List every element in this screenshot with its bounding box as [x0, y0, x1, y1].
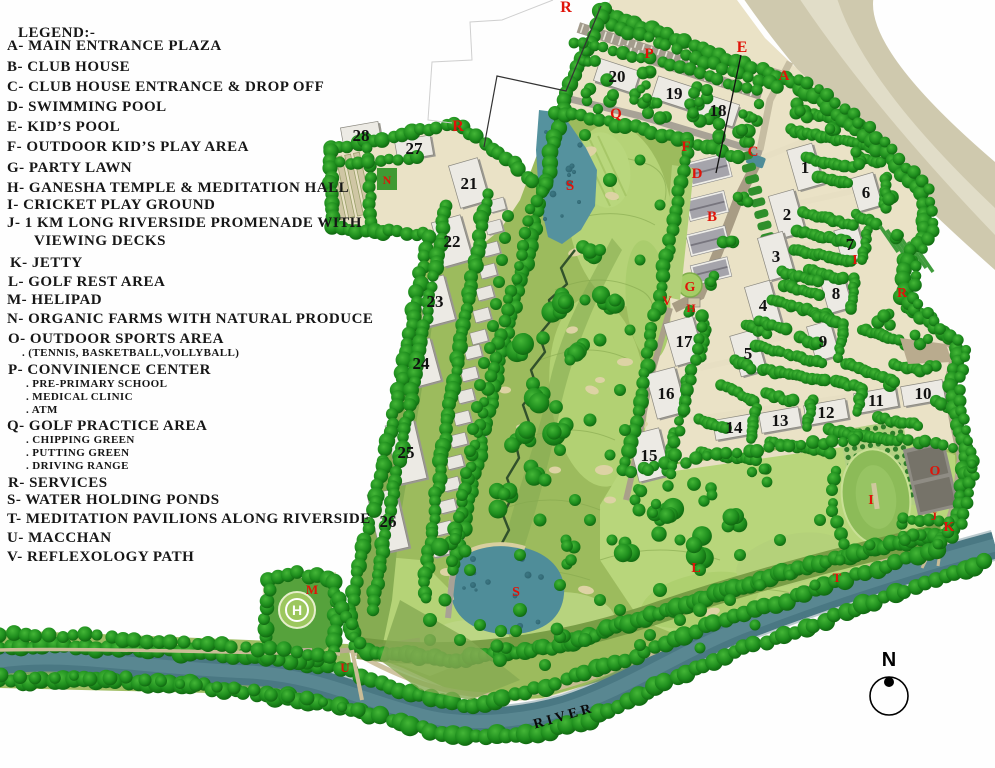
svg-text:25: 25 — [398, 443, 415, 462]
svg-text:10: 10 — [915, 384, 932, 403]
svg-text:U- MACCHAN: U- MACCHAN — [7, 530, 112, 546]
svg-text:. PUTTING GREEN: . PUTTING GREEN — [26, 447, 130, 459]
svg-text:28: 28 — [353, 126, 370, 145]
svg-text:. (TENNIS, BASKETBALL,VOLLYBAL: . (TENNIS, BASKETBALL,VOLLYBALL) — [22, 347, 239, 359]
svg-text:A: A — [779, 68, 790, 84]
svg-text:. PRE-PRIMARY SCHOOL: . PRE-PRIMARY SCHOOL — [26, 378, 167, 390]
svg-text:C- CLUB HOUSE ENTRANCE & DROP: C- CLUB HOUSE ENTRANCE & DROP OFF — [7, 79, 324, 95]
svg-text:L: L — [691, 561, 700, 576]
svg-text:Q- GOLF PRACTICE AREA: Q- GOLF PRACTICE AREA — [7, 418, 207, 434]
svg-text:16: 16 — [658, 384, 675, 403]
svg-text:P: P — [644, 46, 653, 62]
svg-text:F- OUTDOOR KID’S PLAY AREA: F- OUTDOOR KID’S PLAY AREA — [7, 139, 249, 155]
svg-text:L- GOLF REST AREA: L- GOLF REST AREA — [8, 274, 165, 290]
svg-text:G- PARTY LAWN: G- PARTY LAWN — [7, 160, 132, 176]
svg-text:1: 1 — [801, 158, 810, 177]
svg-text:V: V — [662, 293, 672, 308]
svg-text:E: E — [737, 39, 748, 56]
svg-text:15: 15 — [641, 446, 658, 465]
svg-text:24: 24 — [413, 354, 431, 373]
svg-text:22: 22 — [444, 232, 461, 251]
svg-text:S: S — [566, 178, 574, 194]
svg-text:7: 7 — [846, 235, 855, 254]
svg-text:H- GANESHA TEMPLE & MEDITATION: H- GANESHA TEMPLE & MEDITATION HALL — [7, 180, 349, 196]
svg-text:I: I — [868, 493, 873, 508]
svg-text:Q: Q — [610, 106, 622, 122]
svg-text:11: 11 — [868, 391, 884, 410]
svg-text:R: R — [560, 0, 572, 16]
svg-text:O: O — [930, 464, 941, 479]
svg-text:D: D — [692, 166, 703, 182]
svg-text:. DRIVING RANGE: . DRIVING RANGE — [26, 460, 129, 472]
svg-text:21: 21 — [461, 174, 478, 193]
svg-text:T- MEDITATION PAVILIONS ALONG: T- MEDITATION PAVILIONS ALONG RIVERSIDE — [7, 511, 371, 527]
svg-text:VIEWING DECKS: VIEWING DECKS — [34, 233, 166, 249]
svg-text:H: H — [292, 602, 302, 618]
svg-text:R: R — [897, 286, 908, 301]
svg-text:S- WATER HOLDING PONDS: S- WATER HOLDING PONDS — [7, 492, 220, 508]
svg-text:J: J — [931, 509, 937, 523]
svg-text:23: 23 — [427, 292, 444, 311]
svg-text:J- 1 KM LONG RIVERSIDE PROMENA: J- 1 KM LONG RIVERSIDE PROMENADE WITH — [7, 215, 362, 231]
svg-text:H: H — [686, 301, 696, 315]
svg-text:5: 5 — [744, 344, 753, 363]
svg-text:N: N — [882, 649, 896, 671]
svg-text:. MEDICAL CLINIC: . MEDICAL CLINIC — [26, 391, 133, 403]
svg-text:C: C — [748, 144, 759, 160]
svg-text:M: M — [306, 582, 318, 597]
svg-text:K- JETTY: K- JETTY — [10, 255, 83, 271]
svg-text:R: R — [452, 118, 464, 135]
svg-text:A- MAIN ENTRANCE PLAZA: A- MAIN ENTRANCE PLAZA — [7, 38, 222, 54]
svg-text:R- SERVICES: R- SERVICES — [8, 475, 108, 491]
svg-text:18: 18 — [710, 101, 727, 120]
svg-text:4: 4 — [759, 296, 768, 315]
svg-text:26: 26 — [380, 512, 397, 531]
svg-text:U: U — [340, 660, 350, 675]
svg-text:20: 20 — [609, 67, 626, 86]
svg-text:D- SWIMMING POOL: D- SWIMMING POOL — [7, 99, 167, 115]
svg-text:8: 8 — [832, 284, 841, 303]
svg-text:O- OUTDOOR SPORTS AREA: O- OUTDOOR SPORTS AREA — [8, 331, 224, 347]
svg-text:17: 17 — [676, 332, 694, 351]
svg-text:N: N — [383, 173, 392, 187]
svg-text:I: I — [852, 253, 857, 268]
svg-text:P- CONVINIENCE CENTER: P- CONVINIENCE CENTER — [8, 362, 211, 378]
svg-text:. CHIPPING GREEN: . CHIPPING GREEN — [26, 434, 135, 446]
svg-text:E- KID’S POOL: E- KID’S POOL — [7, 119, 120, 135]
svg-text:B- CLUB HOUSE: B- CLUB HOUSE — [7, 59, 130, 75]
svg-text:27: 27 — [406, 139, 424, 158]
svg-text:. ATM: . ATM — [26, 404, 58, 416]
svg-text:T: T — [833, 570, 842, 585]
svg-text:9: 9 — [819, 332, 828, 351]
svg-text:3: 3 — [772, 247, 781, 266]
svg-text:14: 14 — [726, 418, 744, 437]
svg-text:K: K — [944, 520, 955, 535]
svg-text:V- REFLEXOLOGY PATH: V- REFLEXOLOGY PATH — [7, 549, 194, 565]
svg-text:S: S — [512, 585, 520, 600]
svg-text:13: 13 — [772, 411, 789, 430]
svg-text:2: 2 — [783, 205, 792, 224]
svg-text:19: 19 — [666, 84, 683, 103]
svg-text:12: 12 — [818, 403, 835, 422]
svg-text:B: B — [707, 209, 717, 225]
svg-text:F: F — [681, 139, 690, 155]
svg-text:G: G — [685, 280, 696, 295]
svg-text:I- CRICKET PLAY GROUND: I- CRICKET PLAY GROUND — [7, 197, 215, 213]
svg-text:N- ORGANIC FARMS WITH NATURAL: N- ORGANIC FARMS WITH NATURAL PRODUCE — [7, 311, 373, 327]
svg-text:6: 6 — [862, 183, 871, 202]
svg-text:M- HELIPAD: M- HELIPAD — [7, 292, 102, 308]
